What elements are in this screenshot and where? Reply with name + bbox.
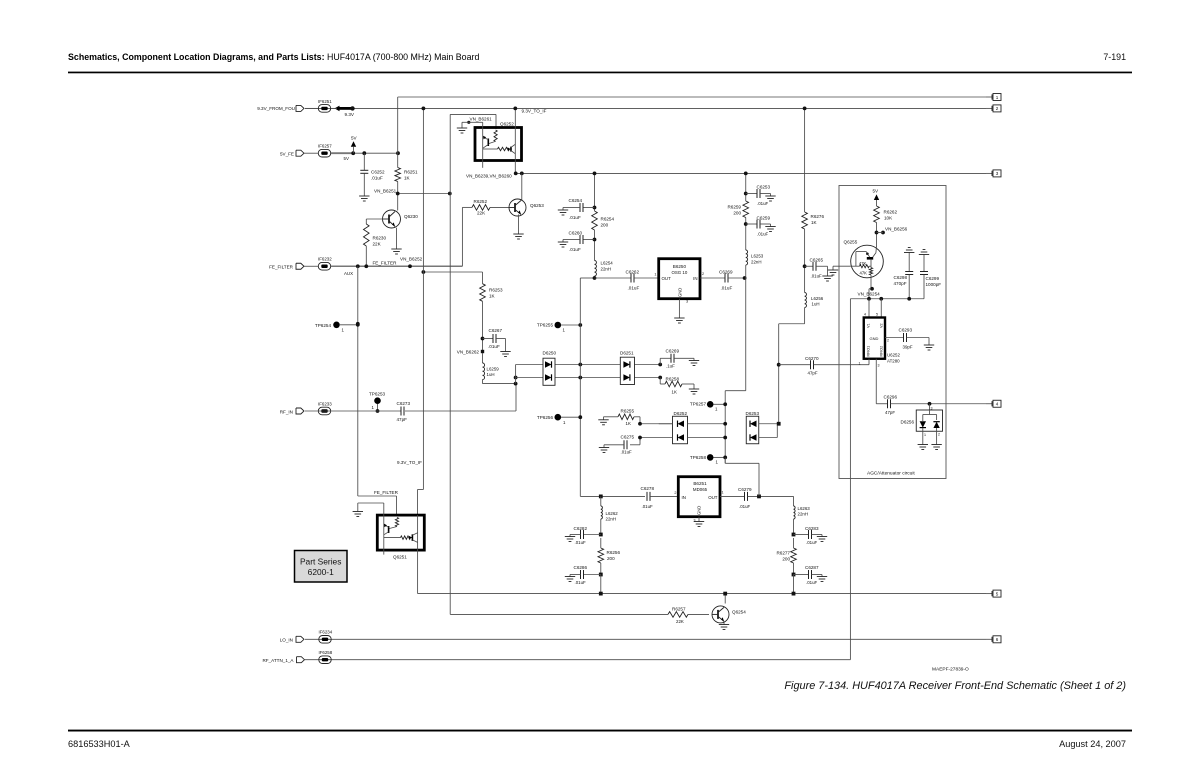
svg-text:C6273: C6273: [397, 401, 411, 406]
svg-text:5V: 5V: [351, 136, 358, 141]
svg-text:IF6234: IF6234: [319, 630, 333, 635]
svg-text:Q6252: Q6252: [500, 122, 514, 127]
svg-text:C6275: C6275: [621, 434, 635, 439]
svg-text:August 24, 2007: August 24, 2007: [1059, 739, 1126, 749]
svg-text:.01uF: .01uF: [757, 201, 769, 206]
svg-text:5V: 5V: [344, 156, 349, 161]
svg-text:9.3V: 9.3V: [345, 112, 355, 117]
svg-text:MAEPF-27839-O: MAEPF-27839-O: [932, 667, 969, 673]
svg-text:VN_B6239,VN_B6260: VN_B6239,VN_B6260: [466, 174, 512, 179]
svg-text:R6255: R6255: [621, 409, 635, 414]
svg-text:D6253: D6253: [746, 411, 760, 416]
svg-text:D6256: D6256: [901, 419, 915, 424]
svg-text:B6250: B6250: [673, 264, 687, 269]
svg-text:C6296: C6296: [884, 394, 898, 399]
svg-text:V2: V2: [880, 323, 884, 328]
svg-text:.01uF: .01uF: [739, 504, 751, 509]
svg-text:.01uF: .01uF: [806, 540, 818, 545]
svg-text:22nH: 22nH: [798, 512, 809, 517]
svg-text:.01uF: .01uF: [757, 231, 769, 236]
svg-text:C6283: C6283: [805, 526, 819, 531]
svg-text:R6253: R6253: [489, 288, 503, 293]
svg-text:TP6257: TP6257: [690, 402, 707, 407]
svg-text:TP6258: TP6258: [690, 455, 707, 460]
svg-text:RFIO2: RFIO2: [880, 346, 884, 357]
svg-text:U6252: U6252: [887, 352, 900, 357]
svg-text:200: 200: [607, 556, 615, 561]
svg-text:1: 1: [722, 491, 724, 495]
svg-text:TP6255: TP6255: [537, 323, 554, 328]
svg-text:1: 1: [372, 405, 375, 410]
svg-text:39pF: 39pF: [903, 344, 913, 349]
svg-text:C6269: C6269: [719, 269, 733, 274]
svg-text:R6258: R6258: [666, 377, 680, 382]
svg-text:R6252: R6252: [474, 199, 488, 204]
svg-text:C6253: C6253: [757, 184, 771, 189]
svg-text:VN_B6254: VN_B6254: [858, 292, 881, 297]
svg-text:5V_FE: 5V_FE: [280, 152, 294, 157]
svg-text:2: 2: [996, 106, 999, 111]
svg-text:C6260: C6260: [569, 230, 583, 235]
svg-text:3: 3: [686, 300, 688, 304]
svg-text:C6259: C6259: [757, 215, 771, 220]
svg-text:1: 1: [654, 272, 656, 276]
svg-text:IN: IN: [682, 495, 686, 500]
svg-text:OUT: OUT: [662, 276, 672, 281]
svg-text:R6276: R6276: [811, 214, 825, 219]
svg-text:IF6251: IF6251: [318, 99, 332, 104]
svg-text:.01uF: .01uF: [642, 504, 654, 509]
svg-text:47pF: 47pF: [808, 371, 818, 376]
svg-text:GND: GND: [697, 506, 702, 515]
svg-text:4: 4: [996, 402, 999, 407]
svg-text:5: 5: [876, 313, 878, 317]
svg-text:RF_IN: RF_IN: [280, 409, 293, 414]
svg-text:IN: IN: [693, 276, 697, 281]
svg-text:C6269: C6269: [666, 349, 680, 354]
svg-text:RFIO1: RFIO1: [867, 346, 871, 357]
svg-text:2: 2: [702, 272, 704, 276]
svg-text:1uH: 1uH: [812, 302, 820, 307]
svg-text:3: 3: [878, 363, 880, 367]
svg-text:B6251: B6251: [693, 481, 707, 486]
svg-text:LO_IN: LO_IN: [280, 638, 293, 643]
svg-text:C6254: C6254: [569, 198, 583, 203]
svg-text:R6277: R6277: [776, 550, 790, 555]
svg-text:FE_FILTER: FE_FILTER: [374, 490, 399, 495]
svg-text:1: 1: [996, 95, 999, 100]
svg-text:47pF: 47pF: [885, 410, 895, 415]
svg-text:9.3V_TO_IF: 9.3V_TO_IF: [397, 460, 422, 465]
svg-text:R6259: R6259: [727, 204, 741, 209]
svg-text:R6256: R6256: [607, 550, 621, 555]
svg-text:6816533H01-A: 6816533H01-A: [68, 739, 131, 749]
svg-text:AT280: AT280: [887, 358, 900, 363]
svg-text:C6267: C6267: [489, 328, 503, 333]
svg-text:D6252: D6252: [674, 411, 688, 416]
svg-text:C6286: C6286: [574, 565, 588, 570]
svg-text:.01uF: .01uF: [569, 247, 581, 252]
svg-text:Figure 7-134. HUF4017A Receive: Figure 7-134. HUF4017A Receiver Front-En…: [784, 680, 1126, 692]
svg-text:2: 2: [674, 491, 676, 495]
svg-text:22K: 22K: [477, 210, 486, 215]
svg-text:TP6253: TP6253: [369, 392, 386, 397]
svg-text:1: 1: [563, 420, 566, 425]
svg-text:FE_FILTER: FE_FILTER: [269, 265, 294, 270]
svg-text:VN_B6261: VN_B6261: [470, 117, 493, 122]
svg-text:RF_ATTN_1_A: RF_ATTN_1_A: [262, 658, 294, 663]
svg-text:5V: 5V: [873, 189, 880, 194]
svg-text:R6251: R6251: [404, 170, 418, 175]
svg-text:22K: 22K: [676, 619, 684, 624]
svg-text:200: 200: [782, 556, 790, 561]
svg-text:.01uF: .01uF: [569, 215, 581, 220]
svg-text:C6279: C6279: [738, 487, 752, 492]
svg-text:OSG 10: OSG 10: [671, 270, 687, 275]
svg-text:C6298: C6298: [894, 275, 908, 280]
svg-text:5: 5: [996, 591, 999, 596]
svg-text:IF6232: IF6232: [318, 257, 332, 262]
svg-text:.01uF: .01uF: [721, 285, 733, 290]
svg-text:6200-1: 6200-1: [308, 567, 334, 577]
svg-text:1K: 1K: [811, 220, 818, 225]
svg-text:C6278: C6278: [641, 486, 655, 491]
svg-text:VN_B6262: VN_B6262: [457, 349, 480, 354]
svg-text:47K: 47K: [859, 261, 867, 266]
svg-text:6: 6: [996, 637, 999, 642]
svg-text:.01uF: .01uF: [628, 285, 640, 290]
svg-text:1000pF: 1000pF: [926, 282, 942, 287]
svg-text:D6251: D6251: [620, 351, 634, 356]
svg-text:IF6233: IF6233: [318, 401, 332, 406]
svg-text:.01uF: .01uF: [811, 274, 823, 279]
svg-text:2: 2: [938, 432, 940, 436]
svg-text:.1uF: .1uF: [666, 363, 675, 368]
svg-text:1: 1: [563, 328, 566, 333]
svg-text:1: 1: [342, 328, 345, 333]
svg-text:22nH: 22nH: [601, 266, 612, 271]
svg-text:47K: 47K: [860, 270, 868, 275]
svg-text:GND: GND: [870, 336, 879, 341]
svg-text:Q6255: Q6255: [844, 240, 858, 245]
svg-text:1: 1: [715, 407, 718, 412]
svg-text:1K: 1K: [489, 294, 496, 299]
svg-text:VN_B6252: VN_B6252: [400, 256, 423, 261]
svg-text:C6293: C6293: [899, 328, 913, 333]
svg-text:4: 4: [864, 313, 866, 317]
svg-text:L6262: L6262: [606, 511, 619, 516]
svg-text:1: 1: [716, 460, 719, 465]
svg-text:R6262: R6262: [884, 210, 898, 215]
svg-text:TP6256: TP6256: [537, 415, 554, 420]
svg-text:.01uF: .01uF: [621, 449, 633, 454]
svg-text:D6250: D6250: [543, 351, 557, 356]
svg-text:C6299: C6299: [926, 276, 940, 281]
svg-text:C6287: C6287: [805, 565, 819, 570]
svg-text:.01uF: .01uF: [488, 344, 500, 349]
svg-text:1K: 1K: [626, 421, 631, 426]
svg-text:Schematics, Component Location: Schematics, Component Location Diagrams,…: [68, 52, 479, 62]
svg-text:L6263: L6263: [798, 506, 811, 511]
svg-text:470pF: 470pF: [894, 281, 907, 286]
svg-text:OUT: OUT: [708, 495, 718, 500]
svg-text:1uH: 1uH: [487, 372, 495, 377]
svg-text:FE_FILTER: FE_FILTER: [373, 260, 398, 265]
svg-text:Q6254: Q6254: [732, 609, 746, 614]
svg-text:L6256: L6256: [811, 296, 824, 301]
svg-text:.01uF: .01uF: [575, 580, 587, 585]
svg-text:47pF: 47pF: [397, 417, 408, 422]
svg-text:AUX: AUX: [344, 271, 353, 276]
svg-text:V1: V1: [867, 323, 871, 328]
svg-text:IF6258: IF6258: [319, 650, 333, 655]
svg-text:C6252: C6252: [371, 170, 385, 175]
svg-text:10K: 10K: [884, 216, 893, 221]
svg-text:22K: 22K: [373, 242, 382, 247]
svg-text:1K: 1K: [404, 176, 411, 181]
svg-text:GND: GND: [677, 288, 682, 297]
svg-text:9.3V_FROM_FOU: 9.3V_FROM_FOU: [257, 106, 295, 111]
svg-text:.01uF: .01uF: [806, 580, 818, 585]
svg-text:.01uF: .01uF: [371, 176, 383, 181]
svg-text:.01uF: .01uF: [575, 540, 587, 545]
svg-text:L6254: L6254: [601, 261, 614, 266]
svg-text:Part Series: Part Series: [300, 556, 341, 566]
svg-text:1: 1: [859, 361, 861, 365]
svg-text:7-191: 7-191: [1103, 52, 1126, 62]
svg-text:R6230: R6230: [373, 236, 387, 241]
svg-text:L6259: L6259: [487, 366, 500, 371]
svg-text:1K: 1K: [672, 389, 677, 394]
svg-text:200: 200: [601, 223, 609, 228]
svg-text:MD065: MD065: [693, 487, 708, 492]
svg-text:Q6251: Q6251: [393, 554, 407, 559]
svg-text:9.3V_TO_IF: 9.3V_TO_IF: [522, 108, 547, 113]
svg-text:3: 3: [996, 171, 999, 176]
svg-text:R6257: R6257: [672, 606, 686, 611]
svg-text:TP6254: TP6254: [315, 323, 332, 328]
svg-text:VN_B6251: VN_B6251: [374, 188, 397, 193]
svg-text:VN_B6256: VN_B6256: [885, 227, 908, 232]
svg-text:IF6257: IF6257: [318, 144, 332, 149]
svg-text:200: 200: [733, 210, 741, 215]
svg-text:1: 1: [924, 433, 926, 437]
svg-text:C6282: C6282: [574, 526, 588, 531]
svg-text:C6265: C6265: [810, 258, 824, 263]
svg-text:C6262: C6262: [626, 269, 640, 274]
svg-text:AGC/Attenuator circuit: AGC/Attenuator circuit: [867, 471, 915, 477]
svg-text:Q6253: Q6253: [530, 203, 544, 208]
svg-text:2: 2: [887, 338, 889, 342]
svg-text:C6270: C6270: [805, 356, 819, 361]
svg-text:22nH: 22nH: [606, 517, 617, 522]
svg-text:R6254: R6254: [601, 217, 615, 222]
svg-text:Q6230: Q6230: [404, 214, 418, 219]
svg-text:22nH: 22nH: [751, 259, 762, 264]
svg-text:L6253: L6253: [751, 254, 764, 259]
